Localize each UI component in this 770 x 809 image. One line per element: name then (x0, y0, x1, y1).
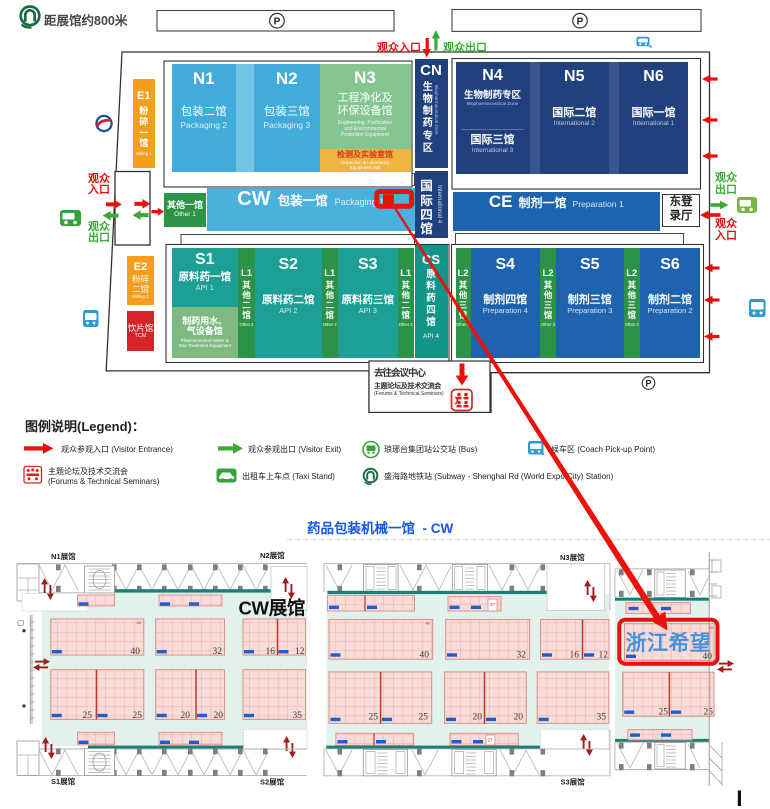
svg-text:CW展馆: CW展馆 (239, 598, 306, 619)
